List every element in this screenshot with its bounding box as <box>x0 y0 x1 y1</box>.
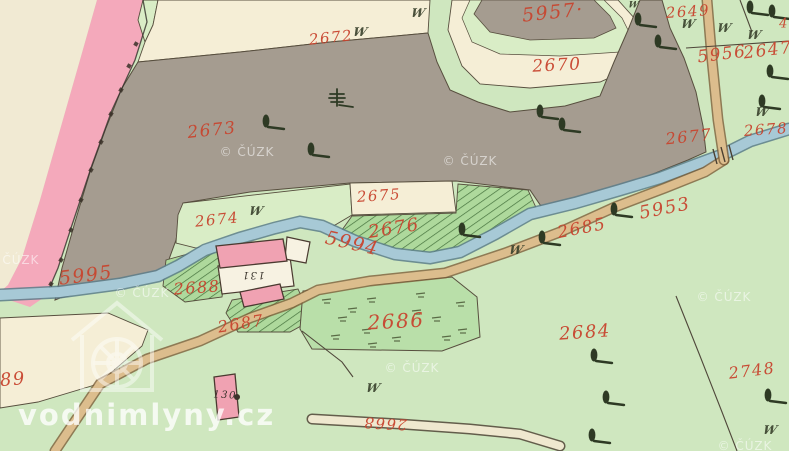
map-canvas: WWWWWWWWWWW 26725957·2649267059562647426… <box>0 0 789 451</box>
watermill-logo-watermark <box>62 295 172 410</box>
parcel-2675-area <box>350 181 456 215</box>
outbuilding <box>285 237 310 263</box>
site-watermark: vodnimlyny.cz <box>18 398 275 432</box>
